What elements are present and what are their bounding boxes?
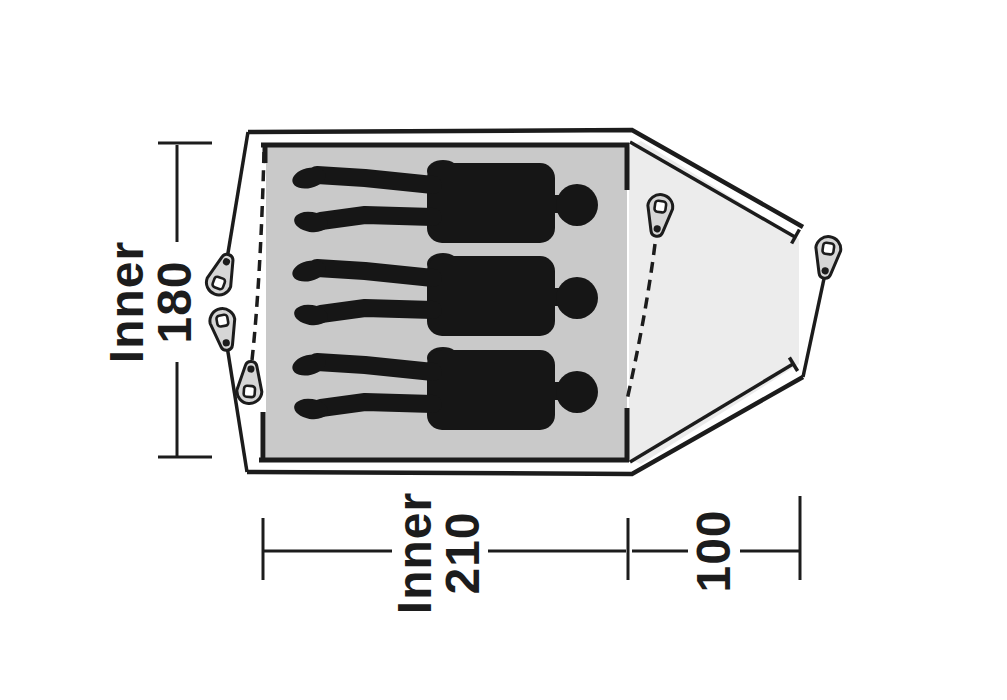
tent-floorplan-diagram: Inner 180 Inner 210 100 <box>0 0 1007 700</box>
dimension-label-inner-width-word: Inner <box>100 241 153 363</box>
dimension-label-inner-width-value: 180 <box>148 260 201 343</box>
dimension-label-inner-length-value: 210 <box>436 511 489 594</box>
dimension-label-inner-length-word: Inner <box>388 492 441 614</box>
dimension-label-porch-depth-value: 100 <box>687 509 740 592</box>
